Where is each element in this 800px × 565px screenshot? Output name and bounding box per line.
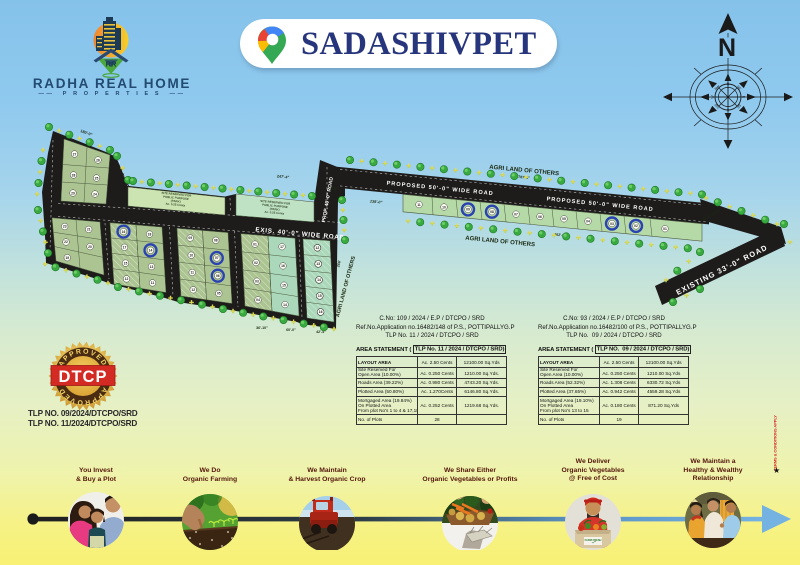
svg-text:06: 06 <box>538 215 542 219</box>
svg-text:12: 12 <box>191 288 195 292</box>
svg-text:13: 13 <box>316 262 320 266</box>
svg-text:06: 06 <box>216 274 220 278</box>
svg-text:17: 17 <box>123 246 127 250</box>
svg-text:34': 34' <box>331 186 337 191</box>
svg-text:16: 16 <box>281 264 285 268</box>
svg-text:04: 04 <box>256 298 260 302</box>
svg-text:01: 01 <box>253 242 257 246</box>
svg-text:05: 05 <box>562 217 566 221</box>
svg-text:19: 19 <box>65 256 69 260</box>
svg-text:08: 08 <box>490 210 494 214</box>
svg-text:180'-0": 180'-0" <box>80 129 93 137</box>
svg-text:11: 11 <box>151 281 155 285</box>
svg-text:24: 24 <box>93 192 97 196</box>
svg-text:13: 13 <box>150 265 154 269</box>
svg-text:E: E <box>741 96 745 99</box>
svg-text:14: 14 <box>149 249 153 253</box>
svg-text:15: 15 <box>282 283 286 287</box>
svg-text:SE: SE <box>735 103 742 110</box>
svg-text:FARM FRESH: FARM FRESH <box>585 538 602 542</box>
svg-text:NE: NE <box>736 85 743 92</box>
svg-text:25: 25 <box>95 176 99 180</box>
svg-text:27: 27 <box>73 152 77 156</box>
svg-text:DTCP: DTCP <box>59 368 108 386</box>
svg-text:03: 03 <box>610 222 614 226</box>
svg-text:36'-10": 36'-10" <box>256 326 268 330</box>
svg-text:26: 26 <box>96 158 100 162</box>
svg-text:18: 18 <box>148 232 152 236</box>
svg-text:21: 21 <box>87 228 91 232</box>
svg-text:W: W <box>711 95 715 99</box>
svg-text:10: 10 <box>442 205 446 209</box>
svg-text:07: 07 <box>514 212 518 216</box>
svg-text:16: 16 <box>319 310 323 314</box>
svg-text:05: 05 <box>217 292 221 296</box>
svg-text:02: 02 <box>634 224 638 228</box>
svg-text:20: 20 <box>88 245 92 249</box>
svg-text:16: 16 <box>122 230 126 234</box>
svg-text:10: 10 <box>189 253 193 257</box>
svg-text:15: 15 <box>124 261 128 265</box>
svg-text:RR: RR <box>106 60 117 69</box>
svg-text:22: 22 <box>64 240 68 244</box>
svg-text:09: 09 <box>188 236 192 240</box>
svg-text:247'-4": 247'-4" <box>277 174 290 179</box>
svg-text:12: 12 <box>125 277 129 281</box>
svg-text:17: 17 <box>280 245 284 249</box>
svg-text:12: 12 <box>316 246 320 250</box>
svg-text:N: N <box>718 34 736 62</box>
svg-text:28: 28 <box>72 173 76 177</box>
svg-text:23: 23 <box>63 225 67 229</box>
svg-text:11: 11 <box>417 203 421 207</box>
svg-text:09: 09 <box>466 208 470 212</box>
svg-text:29: 29 <box>71 191 75 195</box>
svg-text:03: 03 <box>255 279 259 283</box>
svg-text:138'-0": 138'-0" <box>370 199 383 204</box>
svg-text:11: 11 <box>190 271 194 275</box>
svg-text:01: 01 <box>663 227 667 231</box>
svg-text:266': 266' <box>336 260 341 268</box>
svg-text:04: 04 <box>586 220 590 224</box>
svg-text:60'-0": 60'-0" <box>286 328 296 332</box>
svg-text:AGRI LAND OF OTHERS: AGRI LAND OF OTHERS <box>465 236 535 249</box>
svg-text:14: 14 <box>317 278 321 282</box>
svg-text:02: 02 <box>254 261 258 265</box>
svg-text:15: 15 <box>318 294 322 298</box>
svg-text:14: 14 <box>283 303 287 307</box>
svg-text:07: 07 <box>215 256 219 260</box>
svg-text:08: 08 <box>214 239 218 243</box>
